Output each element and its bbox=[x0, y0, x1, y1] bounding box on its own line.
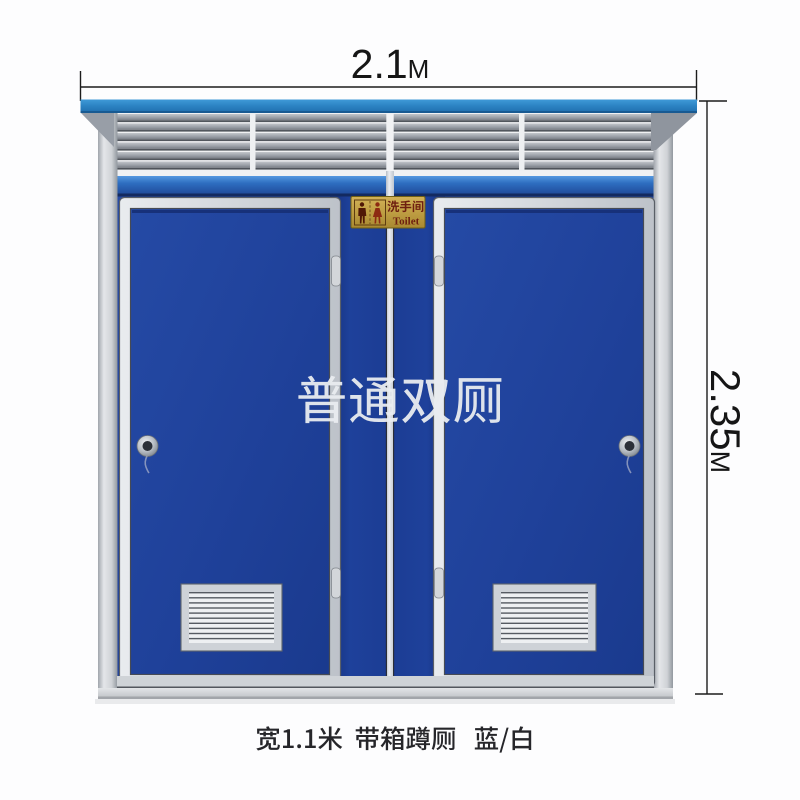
svg-text:Toilet: Toilet bbox=[393, 216, 420, 228]
